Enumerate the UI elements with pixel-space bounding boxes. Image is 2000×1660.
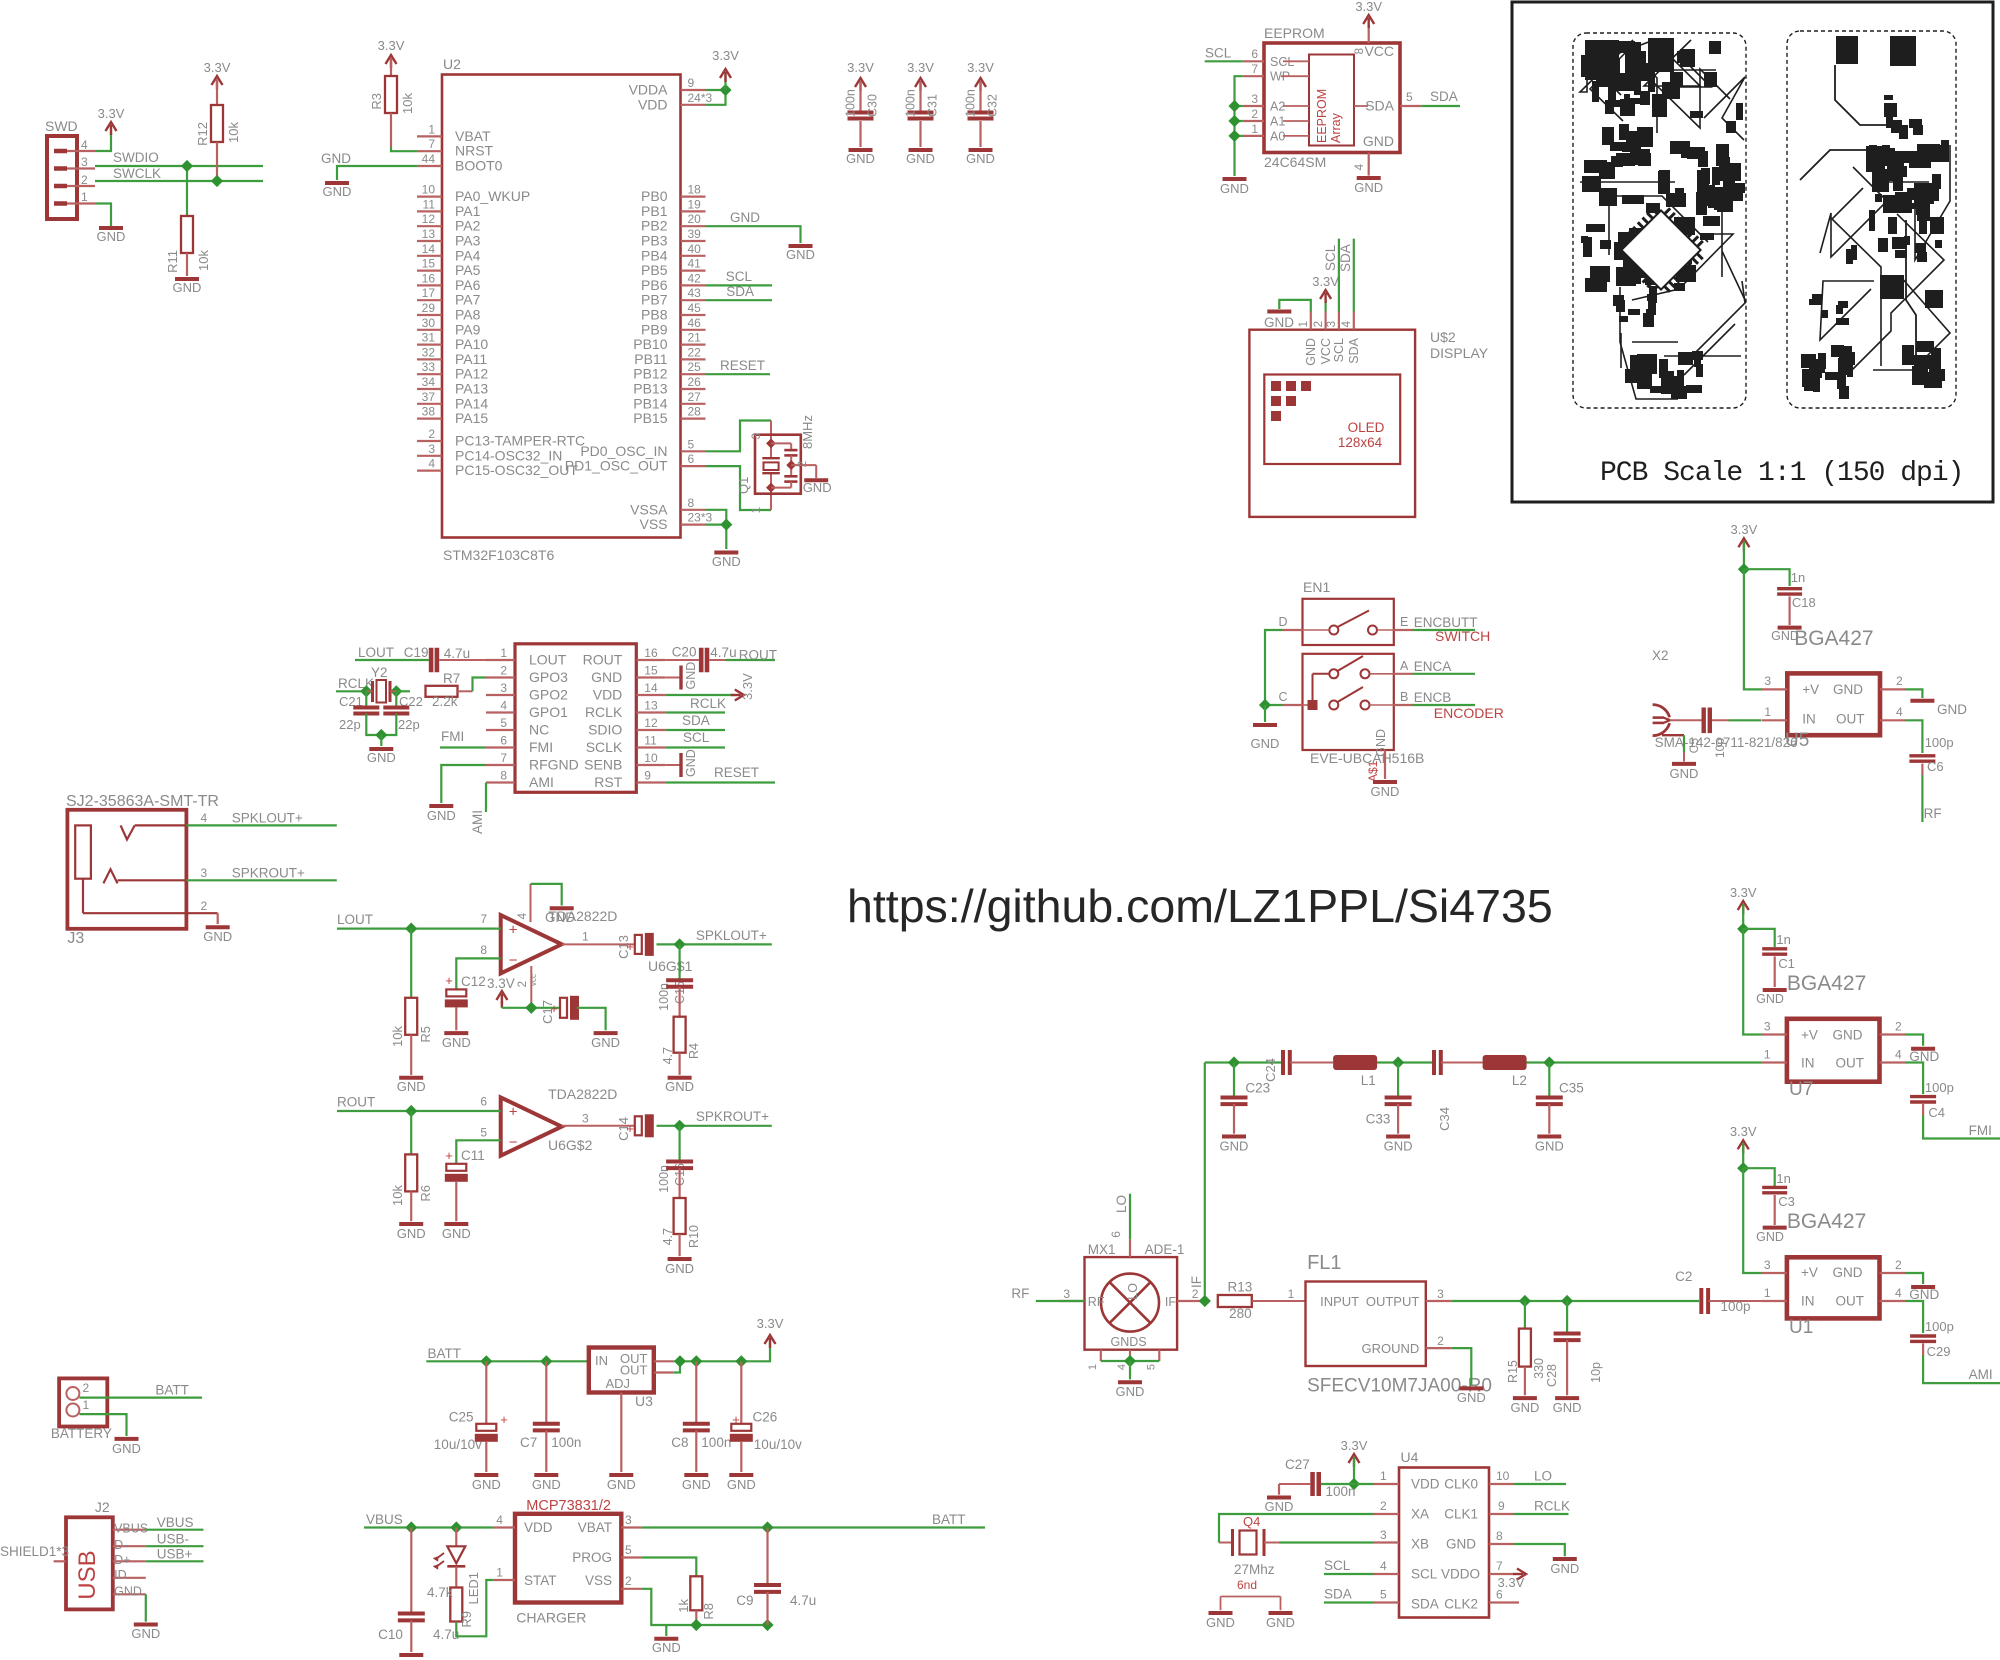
svg-text:FL1: FL1 xyxy=(1307,1252,1341,1274)
svg-text:38: 38 xyxy=(422,405,436,419)
svg-text:100n: 100n xyxy=(551,1435,581,1450)
svg-text:4: 4 xyxy=(500,699,507,713)
svg-text:3: 3 xyxy=(428,442,435,456)
svg-text:EEPROM: EEPROM xyxy=(1315,89,1329,143)
svg-text:ENCODER: ENCODER xyxy=(1434,705,1504,721)
svg-text:GND: GND xyxy=(1535,1139,1564,1154)
svg-text:2: 2 xyxy=(1380,1499,1387,1513)
svg-text:GND: GND xyxy=(1833,682,1863,697)
svg-text:GND: GND xyxy=(114,1585,142,1599)
svg-text:GND: GND xyxy=(591,669,622,685)
svg-text:PA14: PA14 xyxy=(455,395,488,411)
svg-text:2: 2 xyxy=(83,1381,90,1395)
svg-text:3: 3 xyxy=(500,681,507,695)
svg-text:VBAT: VBAT xyxy=(578,1520,612,1535)
svg-text:GND: GND xyxy=(131,1626,160,1641)
svg-text:5: 5 xyxy=(1380,1588,1387,1602)
svg-text:J2: J2 xyxy=(95,1499,110,1515)
svg-text:GND: GND xyxy=(1220,181,1249,196)
svg-text:STAT: STAT xyxy=(524,1573,557,1588)
svg-text:ROUT: ROUT xyxy=(583,652,623,668)
svg-text:8: 8 xyxy=(500,769,507,783)
svg-text:C7: C7 xyxy=(520,1435,537,1450)
svg-text:8MHz: 8MHz xyxy=(800,415,815,449)
svg-text:6: 6 xyxy=(688,452,695,466)
svg-text:GND: GND xyxy=(1833,1027,1863,1042)
svg-text:18: 18 xyxy=(688,183,702,197)
svg-text:9: 9 xyxy=(644,769,651,783)
svg-text:GND: GND xyxy=(684,662,698,690)
svg-text:11: 11 xyxy=(423,197,436,211)
svg-text:3: 3 xyxy=(1437,1287,1444,1301)
svg-text:L2: L2 xyxy=(1512,1073,1527,1088)
svg-text:PCB Scale 1:1 (150 dpi): PCB Scale 1:1 (150 dpi) xyxy=(1600,458,1963,489)
svg-text:ID: ID xyxy=(114,1568,127,1582)
svg-text:C5: C5 xyxy=(1687,738,1701,754)
svg-text:100n: 100n xyxy=(904,89,918,117)
svg-text:SPKROUT+: SPKROUT+ xyxy=(232,865,305,880)
svg-text:PA8: PA8 xyxy=(455,307,481,323)
svg-text:VDDA: VDDA xyxy=(629,82,669,98)
svg-text:10k: 10k xyxy=(390,1185,405,1206)
svg-text:DISPLAY: DISPLAY xyxy=(1430,345,1489,361)
svg-text:3.3V: 3.3V xyxy=(1730,1124,1757,1139)
svg-text:100n: 100n xyxy=(964,89,978,117)
svg-text:4.7: 4.7 xyxy=(661,1228,675,1245)
svg-text:VBAT: VBAT xyxy=(455,128,491,144)
svg-text:GND: GND xyxy=(1550,1561,1579,1576)
svg-text:IN: IN xyxy=(1801,1294,1815,1309)
svg-text:C34: C34 xyxy=(1437,1107,1452,1131)
svg-text:EN1: EN1 xyxy=(1303,579,1330,595)
svg-text:OUT: OUT xyxy=(1836,1294,1865,1309)
svg-text:2: 2 xyxy=(500,664,507,678)
svg-text:1: 1 xyxy=(1764,705,1771,719)
svg-text:SJ2-35863A-SMT-TR: SJ2-35863A-SMT-TR xyxy=(66,793,219,810)
svg-text:1: 1 xyxy=(1251,122,1258,136)
svg-text:R10: R10 xyxy=(687,1225,701,1248)
svg-text:R8: R8 xyxy=(701,1603,716,1620)
svg-text:RCLK: RCLK xyxy=(585,704,623,720)
svg-text:PA10: PA10 xyxy=(455,336,488,352)
svg-text:PB1: PB1 xyxy=(641,203,668,219)
svg-text:4: 4 xyxy=(428,457,435,471)
svg-text:20: 20 xyxy=(688,212,702,226)
svg-text:GND: GND xyxy=(1264,315,1294,330)
svg-text:RST: RST xyxy=(594,774,622,790)
svg-text:RESET: RESET xyxy=(720,358,765,373)
svg-text:GND: GND xyxy=(665,1079,694,1094)
svg-text:ROUT: ROUT xyxy=(739,648,777,663)
svg-text:SHIELD1*3: SHIELD1*3 xyxy=(0,1544,69,1559)
svg-text:12: 12 xyxy=(644,716,658,730)
svg-text:2: 2 xyxy=(1192,1287,1199,1301)
svg-text:GND: GND xyxy=(727,1477,756,1492)
svg-text:1: 1 xyxy=(1380,1469,1387,1483)
svg-text:3: 3 xyxy=(1380,1528,1387,1542)
svg-text:C8: C8 xyxy=(671,1435,688,1450)
svg-text:PA13: PA13 xyxy=(455,381,488,397)
svg-text:2: 2 xyxy=(1895,1019,1902,1033)
svg-text:2: 2 xyxy=(797,461,809,467)
svg-text:33: 33 xyxy=(422,360,436,374)
svg-text:STM32F103C8T6: STM32F103C8T6 xyxy=(443,547,554,563)
svg-text:GND: GND xyxy=(1265,1499,1294,1514)
svg-text:16: 16 xyxy=(644,646,658,660)
svg-text:23*3: 23*3 xyxy=(688,511,713,525)
svg-text:IN: IN xyxy=(1802,712,1816,727)
svg-text:U1: U1 xyxy=(1789,1317,1813,1338)
svg-text:8: 8 xyxy=(1496,1529,1503,1543)
svg-text:C20: C20 xyxy=(672,645,697,660)
svg-text:17: 17 xyxy=(422,286,436,300)
svg-text:SCL: SCL xyxy=(1411,1567,1438,1582)
svg-text:44: 44 xyxy=(422,152,436,166)
svg-text:E: E xyxy=(1400,615,1408,629)
svg-text:SDA: SDA xyxy=(682,713,710,728)
svg-text:C33: C33 xyxy=(1366,1112,1391,1127)
svg-text:ENCB: ENCB xyxy=(1414,690,1452,705)
svg-text:FMI: FMI xyxy=(529,739,553,755)
svg-text:GND: GND xyxy=(966,151,995,166)
svg-text:GND: GND xyxy=(786,247,815,262)
svg-text:C9: C9 xyxy=(736,1593,753,1608)
svg-text:3.3V: 3.3V xyxy=(487,976,515,991)
svg-text:100n: 100n xyxy=(701,1435,731,1450)
svg-text:C12: C12 xyxy=(461,974,486,989)
svg-text:3.3V: 3.3V xyxy=(1312,274,1339,289)
svg-text:15: 15 xyxy=(644,664,658,678)
svg-text:PA1: PA1 xyxy=(455,203,481,219)
svg-text:LOUT: LOUT xyxy=(337,912,373,927)
svg-text:26: 26 xyxy=(688,375,702,389)
svg-text:45: 45 xyxy=(688,301,702,315)
svg-text:C1: C1 xyxy=(1778,956,1795,971)
svg-text:−: − xyxy=(509,1134,518,1151)
svg-text:3.3V: 3.3V xyxy=(378,38,405,53)
svg-text:3: 3 xyxy=(582,1112,589,1126)
svg-text:VSSA: VSSA xyxy=(630,501,668,517)
svg-text:3.3V: 3.3V xyxy=(847,60,874,75)
svg-text:U4: U4 xyxy=(1401,1449,1419,1465)
svg-text:4: 4 xyxy=(201,811,208,825)
svg-text:RFGND: RFGND xyxy=(529,757,579,773)
svg-text:PB10: PB10 xyxy=(633,336,667,352)
svg-text:37: 37 xyxy=(422,390,436,404)
svg-text:3.3V: 3.3V xyxy=(1498,1575,1525,1590)
svg-text:Array: Array xyxy=(1329,112,1343,143)
svg-text:3.3V: 3.3V xyxy=(204,60,231,75)
svg-text:U3: U3 xyxy=(635,1393,653,1409)
svg-text:GND: GND xyxy=(1756,1230,1784,1244)
svg-text:AMI: AMI xyxy=(470,810,485,834)
svg-text:1: 1 xyxy=(1298,321,1310,327)
svg-text:GND: GND xyxy=(846,151,875,166)
svg-text:GND: GND xyxy=(1304,338,1318,366)
svg-text:BGA427: BGA427 xyxy=(1794,627,1873,650)
svg-text:GND: GND xyxy=(472,1477,501,1492)
svg-text:27: 27 xyxy=(688,390,702,404)
svg-text:VDD: VDD xyxy=(638,96,668,112)
svg-text:1: 1 xyxy=(1764,1286,1771,1300)
svg-text:GND: GND xyxy=(173,280,202,295)
svg-text:4.7u: 4.7u xyxy=(710,645,736,660)
svg-text:U2: U2 xyxy=(443,56,461,72)
svg-text:IN: IN xyxy=(1801,1055,1815,1070)
svg-text:BGA427: BGA427 xyxy=(1787,1210,1866,1233)
svg-text:GND: GND xyxy=(1266,1615,1295,1630)
svg-text:3: 3 xyxy=(1063,1287,1070,1301)
svg-text:SCL: SCL xyxy=(1323,244,1338,271)
svg-text:100n: 100n xyxy=(1326,1484,1356,1499)
svg-text:GND: GND xyxy=(730,210,760,225)
svg-text:C18: C18 xyxy=(1792,595,1816,610)
svg-text:GND: GND xyxy=(1371,784,1400,799)
svg-text:3.3V: 3.3V xyxy=(1730,885,1757,900)
svg-text:+: + xyxy=(445,1148,453,1163)
svg-text:GND: GND xyxy=(652,1640,681,1655)
svg-text:SPKROUT+: SPKROUT+ xyxy=(696,1109,769,1124)
svg-text:6nd: 6nd xyxy=(1237,1578,1257,1592)
svg-text:1n: 1n xyxy=(1791,570,1805,585)
svg-text:GND: GND xyxy=(1354,180,1383,195)
svg-text:GND: GND xyxy=(1116,1384,1145,1399)
svg-text:27Mhz: 27Mhz xyxy=(1234,1562,1275,1577)
svg-text:C28: C28 xyxy=(1545,1364,1559,1387)
svg-text:C32: C32 xyxy=(986,94,1000,117)
svg-text:7: 7 xyxy=(1496,1559,1503,1573)
svg-text:GND: GND xyxy=(545,910,575,925)
svg-text:2: 2 xyxy=(1313,321,1325,327)
svg-text:7: 7 xyxy=(480,912,487,926)
svg-text:C6: C6 xyxy=(1927,759,1944,774)
svg-text:SWDIO: SWDIO xyxy=(113,150,159,165)
svg-text:R4: R4 xyxy=(687,1043,701,1059)
svg-text:CLK0: CLK0 xyxy=(1444,1477,1478,1492)
svg-text:5: 5 xyxy=(1406,90,1413,104)
svg-text:1: 1 xyxy=(500,646,507,660)
svg-text:SCL: SCL xyxy=(1332,338,1346,362)
svg-text:13: 13 xyxy=(644,699,658,713)
svg-text:40: 40 xyxy=(688,242,702,256)
svg-text:PD1_OSC_OUT: PD1_OSC_OUT xyxy=(565,458,668,474)
svg-text:PA0_WKUP: PA0_WKUP xyxy=(455,188,530,204)
svg-text:XA: XA xyxy=(1411,1507,1429,1522)
svg-text:4: 4 xyxy=(1895,1047,1902,1061)
svg-text:5: 5 xyxy=(625,1543,632,1557)
svg-text:100p: 100p xyxy=(1925,1319,1954,1334)
svg-text:5: 5 xyxy=(480,1125,487,1139)
svg-text:6: 6 xyxy=(500,734,507,748)
svg-text:VDD: VDD xyxy=(1411,1477,1440,1492)
svg-text:LO: LO xyxy=(1534,1469,1552,1484)
svg-text:ROUT: ROUT xyxy=(337,1094,375,1109)
svg-text:4: 4 xyxy=(517,912,529,919)
svg-text:C3: C3 xyxy=(1778,1194,1795,1209)
svg-text:PA11: PA11 xyxy=(455,351,487,367)
svg-text:10k: 10k xyxy=(226,122,241,143)
svg-text:R5: R5 xyxy=(418,1026,433,1043)
svg-text:PA4: PA4 xyxy=(455,247,481,263)
svg-text:8: 8 xyxy=(688,496,695,510)
svg-text:5: 5 xyxy=(1145,1364,1157,1370)
svg-text:C27: C27 xyxy=(1285,1457,1310,1472)
svg-text:5: 5 xyxy=(688,437,695,451)
svg-text:MCP73831/2: MCP73831/2 xyxy=(526,1498,611,1514)
svg-text:GND: GND xyxy=(203,929,232,944)
svg-text:GND: GND xyxy=(1909,1287,1939,1302)
svg-text:GND: GND xyxy=(1756,992,1784,1006)
svg-text:10k: 10k xyxy=(196,250,211,271)
svg-text:VSS: VSS xyxy=(639,516,667,532)
svg-text:2: 2 xyxy=(625,1574,632,1588)
svg-text:GND: GND xyxy=(427,808,456,823)
svg-text:330: 330 xyxy=(1532,1358,1546,1379)
svg-text:SDA: SDA xyxy=(726,284,754,299)
svg-text:VBUS: VBUS xyxy=(366,1512,403,1527)
svg-text:EEPROM: EEPROM xyxy=(1264,25,1325,41)
svg-text:CHARGER: CHARGER xyxy=(516,1610,586,1626)
svg-text:R9: R9 xyxy=(459,1611,474,1628)
svg-text:3: 3 xyxy=(1326,321,1338,327)
svg-text:3.3V: 3.3V xyxy=(1341,1438,1368,1453)
svg-text:+V: +V xyxy=(1802,682,1819,697)
svg-text:GND: GND xyxy=(682,1477,711,1492)
svg-text:41: 41 xyxy=(688,257,702,271)
svg-text:GND: GND xyxy=(1206,1615,1235,1630)
svg-text:AMI: AMI xyxy=(1969,1367,1993,1382)
svg-text:R12: R12 xyxy=(195,122,210,146)
svg-text:PA7: PA7 xyxy=(455,292,481,308)
svg-text:+: + xyxy=(445,973,453,988)
svg-text:GND: GND xyxy=(97,229,126,244)
svg-text:GND: GND xyxy=(112,1441,141,1456)
svg-text:PA2: PA2 xyxy=(455,218,481,234)
svg-text:2: 2 xyxy=(428,427,435,441)
svg-text:3: 3 xyxy=(751,433,763,439)
svg-text:SDA: SDA xyxy=(1411,1597,1439,1612)
svg-text:VCC: VCC xyxy=(1319,338,1333,364)
svg-text:2.2k: 2.2k xyxy=(432,694,458,709)
svg-text:PB4: PB4 xyxy=(641,247,668,263)
svg-text:GND: GND xyxy=(684,749,698,777)
svg-text:43: 43 xyxy=(688,286,702,300)
svg-text:100p: 100p xyxy=(1925,735,1954,750)
svg-text:U7: U7 xyxy=(1789,1079,1813,1100)
svg-text:C11: C11 xyxy=(461,1148,485,1163)
svg-text:−: − xyxy=(509,952,518,969)
svg-text:SENB: SENB xyxy=(584,757,622,773)
svg-text:SPKLOUT+: SPKLOUT+ xyxy=(696,928,767,943)
svg-text:2: 2 xyxy=(201,899,208,913)
svg-text:RCLK: RCLK xyxy=(1534,1499,1570,1514)
svg-text:2: 2 xyxy=(1895,1258,1902,1272)
svg-text:5: 5 xyxy=(500,716,507,730)
svg-text:+: + xyxy=(509,921,518,938)
svg-text:+: + xyxy=(550,1001,558,1016)
svg-text:4: 4 xyxy=(1341,320,1353,327)
svg-text:BATT: BATT xyxy=(932,1512,966,1527)
svg-text:LOUT: LOUT xyxy=(529,652,567,668)
svg-text:4: 4 xyxy=(81,138,88,152)
svg-text:GPO3: GPO3 xyxy=(529,669,568,685)
svg-text:1: 1 xyxy=(582,929,589,943)
svg-text:GND: GND xyxy=(1251,736,1280,751)
svg-text:U5: U5 xyxy=(1785,730,1809,751)
svg-text:C30: C30 xyxy=(866,94,880,117)
svg-text:TDA2822D: TDA2822D xyxy=(548,1086,617,1102)
svg-text:IN: IN xyxy=(595,1353,608,1368)
svg-text:VDD: VDD xyxy=(593,687,623,703)
svg-text:1: 1 xyxy=(751,507,763,513)
svg-text:9: 9 xyxy=(1498,1499,1505,1513)
svg-text:1: 1 xyxy=(428,122,435,136)
svg-text:4: 4 xyxy=(1895,1286,1902,1300)
svg-text:1: 1 xyxy=(1087,1364,1099,1370)
svg-text:+: + xyxy=(626,1121,634,1136)
svg-text:3: 3 xyxy=(1764,1258,1771,1272)
svg-text:SDA: SDA xyxy=(1430,89,1458,104)
svg-text:GND: GND xyxy=(1833,1265,1863,1280)
svg-text:13: 13 xyxy=(422,227,436,241)
svg-text:24*3: 24*3 xyxy=(688,91,713,105)
svg-text:4: 4 xyxy=(1896,705,1903,719)
svg-text:RF: RF xyxy=(1011,1286,1029,1301)
svg-text:30: 30 xyxy=(422,316,436,330)
svg-text:SDA: SDA xyxy=(1347,337,1361,363)
svg-text:LED1: LED1 xyxy=(466,1572,481,1605)
svg-text:46: 46 xyxy=(688,316,702,330)
svg-text:BATTERY: BATTERY xyxy=(51,1426,112,1441)
svg-text:GND: GND xyxy=(1553,1400,1582,1415)
svg-text:1k: 1k xyxy=(676,1599,691,1613)
svg-text:GND: GND xyxy=(1363,133,1394,149)
svg-text:R7: R7 xyxy=(443,671,460,686)
svg-text:PB13: PB13 xyxy=(633,381,667,397)
svg-text:2: 2 xyxy=(1896,674,1903,688)
svg-text:SDA: SDA xyxy=(1338,244,1353,272)
svg-text:PA3: PA3 xyxy=(455,233,481,249)
svg-text:PA5: PA5 xyxy=(455,262,481,278)
svg-text:34: 34 xyxy=(422,375,436,389)
svg-text:GROUND: GROUND xyxy=(1362,1341,1420,1356)
svg-text:VSS: VSS xyxy=(585,1573,612,1588)
svg-text:3.3V: 3.3V xyxy=(712,48,739,63)
svg-text:GND: GND xyxy=(665,1261,694,1276)
svg-text:16: 16 xyxy=(422,271,436,285)
svg-text:3.3V: 3.3V xyxy=(1355,0,1382,14)
svg-text:VDDO: VDDO xyxy=(1441,1567,1480,1582)
svg-text:U6G$1: U6G$1 xyxy=(648,958,693,974)
svg-text:128x64: 128x64 xyxy=(1338,435,1383,450)
svg-text:4.7k: 4.7k xyxy=(427,1585,453,1600)
svg-text:USB: USB xyxy=(74,1550,101,1599)
svg-text:PA6: PA6 xyxy=(455,277,481,293)
svg-text:3.3V: 3.3V xyxy=(98,106,125,121)
svg-text:7: 7 xyxy=(500,751,507,765)
svg-text:10: 10 xyxy=(644,751,658,765)
svg-text:BGA427: BGA427 xyxy=(1787,972,1866,995)
svg-text:SWCLK: SWCLK xyxy=(113,166,161,181)
svg-text:7: 7 xyxy=(428,137,435,151)
svg-text:BOOT0: BOOT0 xyxy=(455,158,503,174)
svg-text:1: 1 xyxy=(1764,1047,1771,1061)
svg-text:C29: C29 xyxy=(1927,1344,1951,1359)
svg-text:C: C xyxy=(1278,690,1287,704)
svg-text:GND: GND xyxy=(1670,766,1699,781)
svg-text:C25: C25 xyxy=(449,1410,474,1425)
svg-text:15: 15 xyxy=(422,257,436,271)
